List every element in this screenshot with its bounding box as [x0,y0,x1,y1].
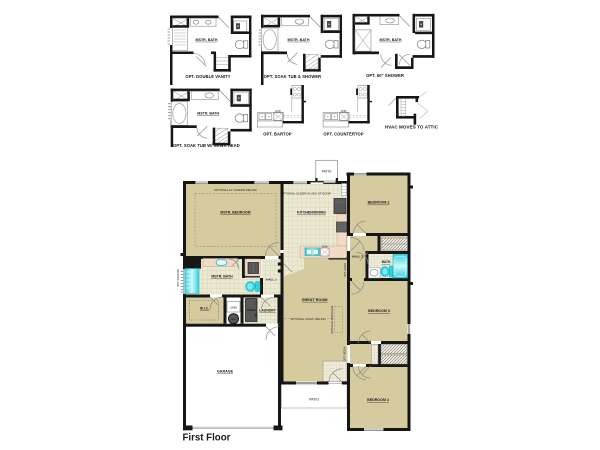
svg-text:OPTIONAL 12' COFFER CEILING: OPTIONAL 12' COFFER CEILING [214,188,257,192]
svg-text:PATIO: PATIO [309,398,319,402]
svg-text:BATH: BATH [382,260,391,264]
svg-text:GARAGE: GARAGE [217,370,234,374]
svg-text:OPT. DOUBLE VANITY: OPT. DOUBLE VANITY [185,74,230,79]
svg-text:HALL 2: HALL 2 [352,254,363,258]
svg-text:OPT. BARTOP: OPT. BARTOP [263,131,292,136]
svg-text:LAUNDRY: LAUNDRY [259,309,276,313]
svg-text:HVAC MOVES TO ATTIC: HVAC MOVES TO ATTIC [385,124,439,129]
svg-text:MSTR. BATH: MSTR. BATH [211,274,233,278]
svg-text:OPTIONAL FIREPLACE: OPTIONAL FIREPLACE [330,305,334,333]
svg-text:OPTIONAL VAULT CEILING: OPTIONAL VAULT CEILING [290,317,325,321]
svg-text:D/W: D/W [322,244,328,248]
svg-text:BEDROOM 4: BEDROOM 4 [367,398,389,402]
svg-text:OPTIONAL SLIDER IN LIEU OF DOO: OPTIONAL SLIDER IN LIEU OF DOOR [281,192,330,196]
svg-text:BEDROOM 2: BEDROOM 2 [368,201,390,205]
svg-text:OPT. SOAK TUB & SHOWER: OPT. SOAK TUB & SHOWER [264,74,321,79]
svg-text:First Floor: First Floor [183,432,231,443]
svg-text:OPT. COUNTERTOP: OPT. COUNTERTOP [323,131,363,136]
svg-text:OPT. WINDOW: OPT. WINDOW [176,269,180,287]
svg-text:KITCHEN/DINING: KITCHEN/DINING [297,211,326,215]
svg-text:W: W [253,313,258,317]
svg-text:BEDROOM 3: BEDROOM 3 [368,309,390,313]
svg-text:OPT. DOOR: OPT. DOOR [344,263,347,277]
svg-text:MSTR. BATH: MSTR. BATH [196,38,218,42]
svg-text:GREAT ROOM: GREAT ROOM [302,298,328,302]
svg-text:W.I.C.: W.I.C. [200,306,209,310]
svg-text:D: D [253,302,258,305]
svg-text:MSTR. BATH: MSTR. BATH [288,38,310,42]
svg-text:OPT. MEDIA: OPT. MEDIA [343,346,347,361]
svg-text:OPT. SOAK TUB W/ SHWR HEAD: OPT. SOAK TUB W/ SHWR HEAD [173,143,240,148]
svg-text:LINEN: LINEN [230,306,238,309]
svg-text:OPT. 60" SHOWER: OPT. 60" SHOWER [366,73,404,78]
svg-text:PATIO: PATIO [322,170,332,174]
svg-text:MSTR. BEDROOM: MSTR. BEDROOM [220,211,250,215]
svg-text:HALL 1: HALL 1 [266,277,277,281]
svg-text:D/W: D/W [275,109,281,113]
svg-text:W/H: W/H [231,317,236,321]
svg-text:MSTR. BATH: MSTR. BATH [380,38,402,42]
